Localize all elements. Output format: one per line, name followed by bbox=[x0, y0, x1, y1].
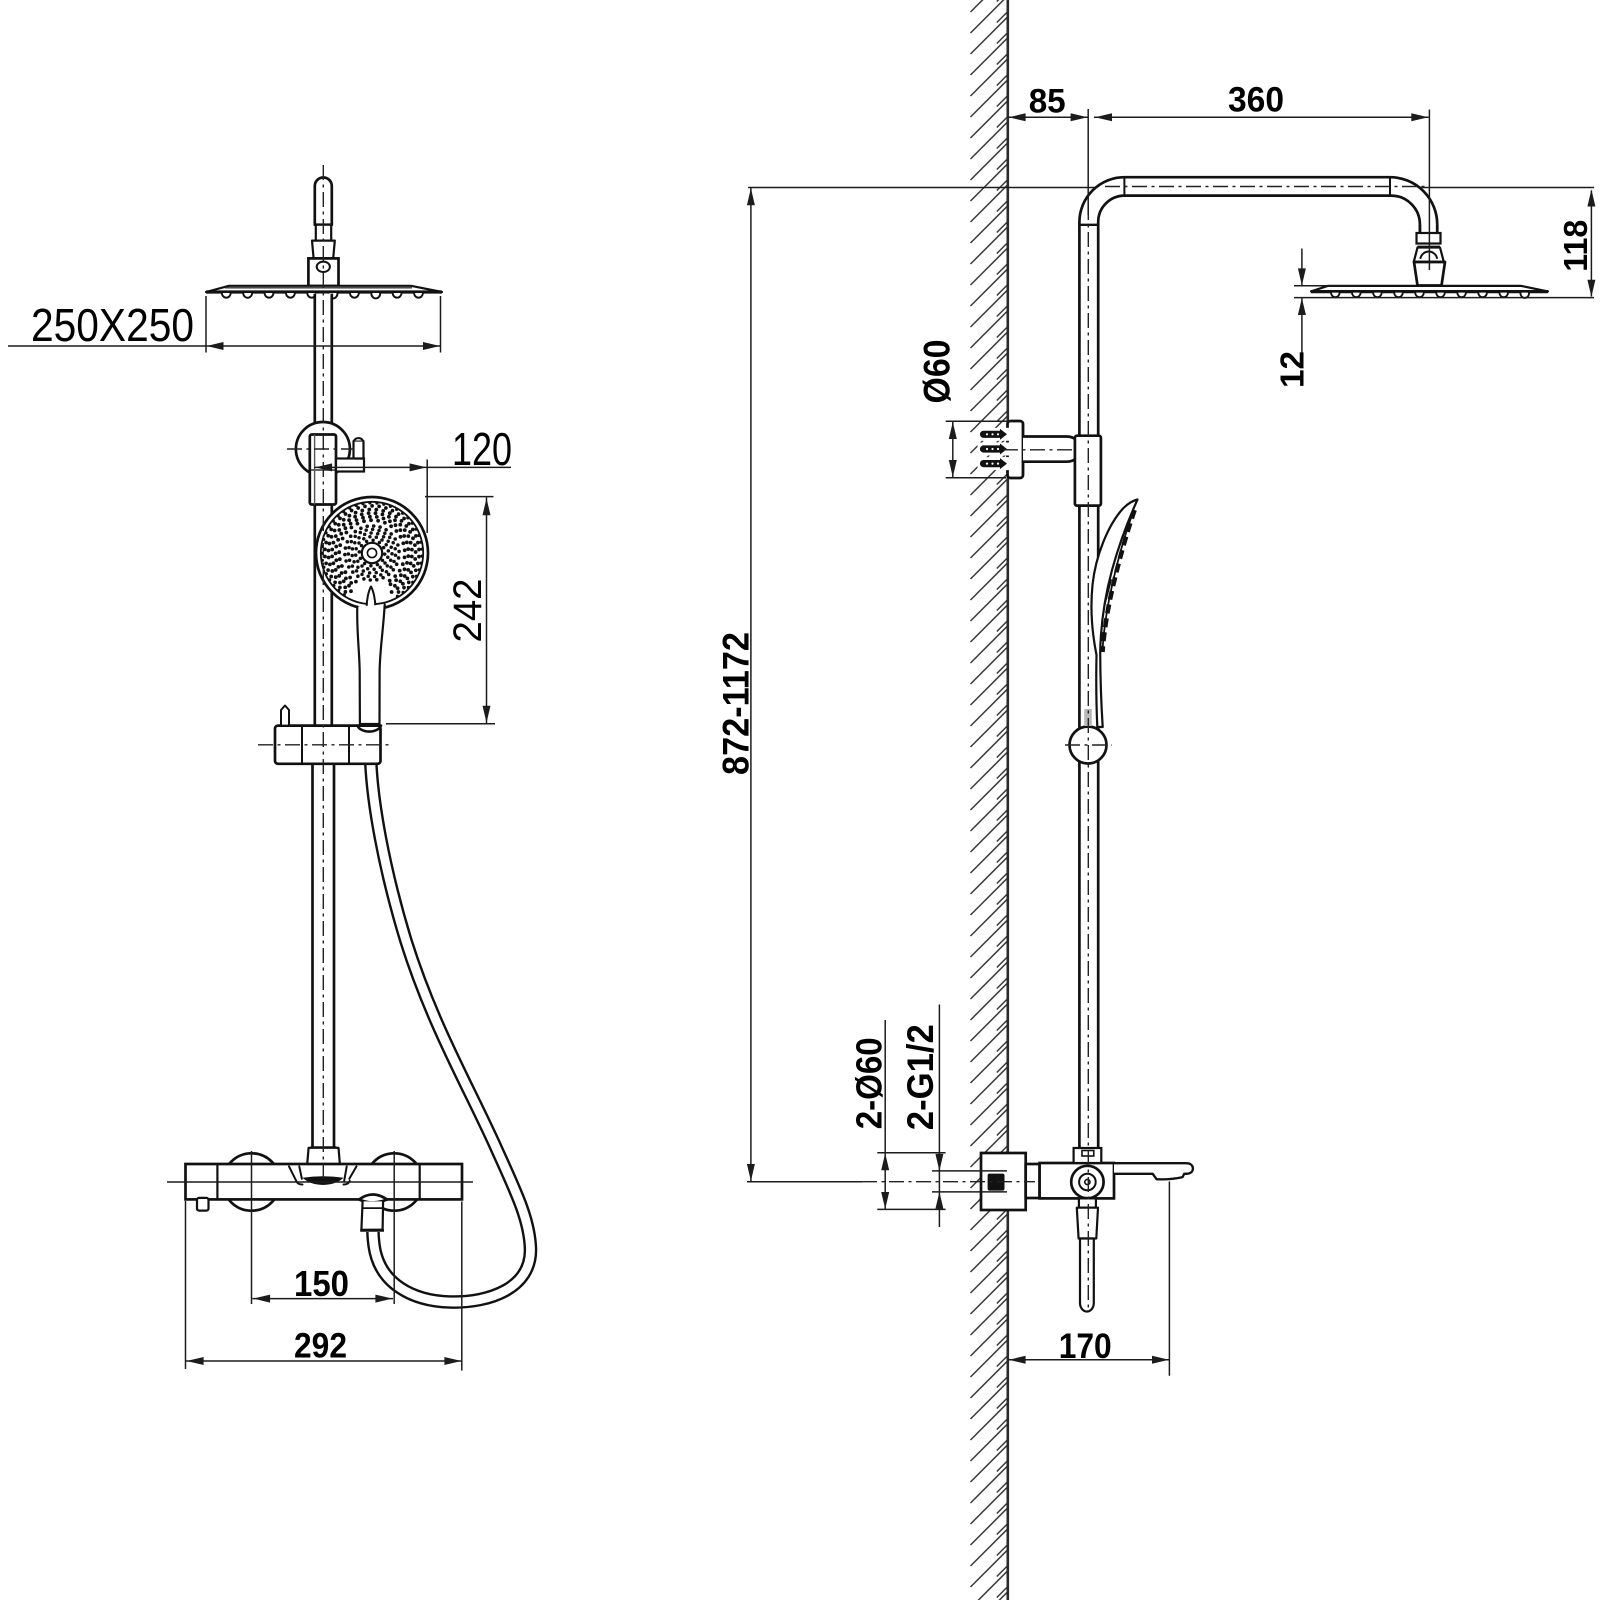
svg-text:118: 118 bbox=[1557, 220, 1594, 272]
svg-text:2-Ø60: 2-Ø60 bbox=[849, 1037, 890, 1129]
svg-text:12: 12 bbox=[1274, 351, 1311, 388]
svg-text:872-1172: 872-1172 bbox=[715, 632, 757, 775]
svg-text:360: 360 bbox=[1228, 81, 1284, 120]
svg-text:170: 170 bbox=[1059, 1327, 1112, 1366]
svg-text:85: 85 bbox=[1029, 83, 1066, 121]
svg-text:250X250: 250X250 bbox=[31, 299, 194, 351]
svg-text:Ø60: Ø60 bbox=[917, 340, 958, 404]
svg-text:150: 150 bbox=[294, 1263, 349, 1304]
svg-text:120: 120 bbox=[452, 423, 512, 475]
svg-text:2-G1/2: 2-G1/2 bbox=[900, 1024, 941, 1130]
svg-text:242: 242 bbox=[446, 579, 490, 643]
svg-text:292: 292 bbox=[294, 1327, 347, 1366]
